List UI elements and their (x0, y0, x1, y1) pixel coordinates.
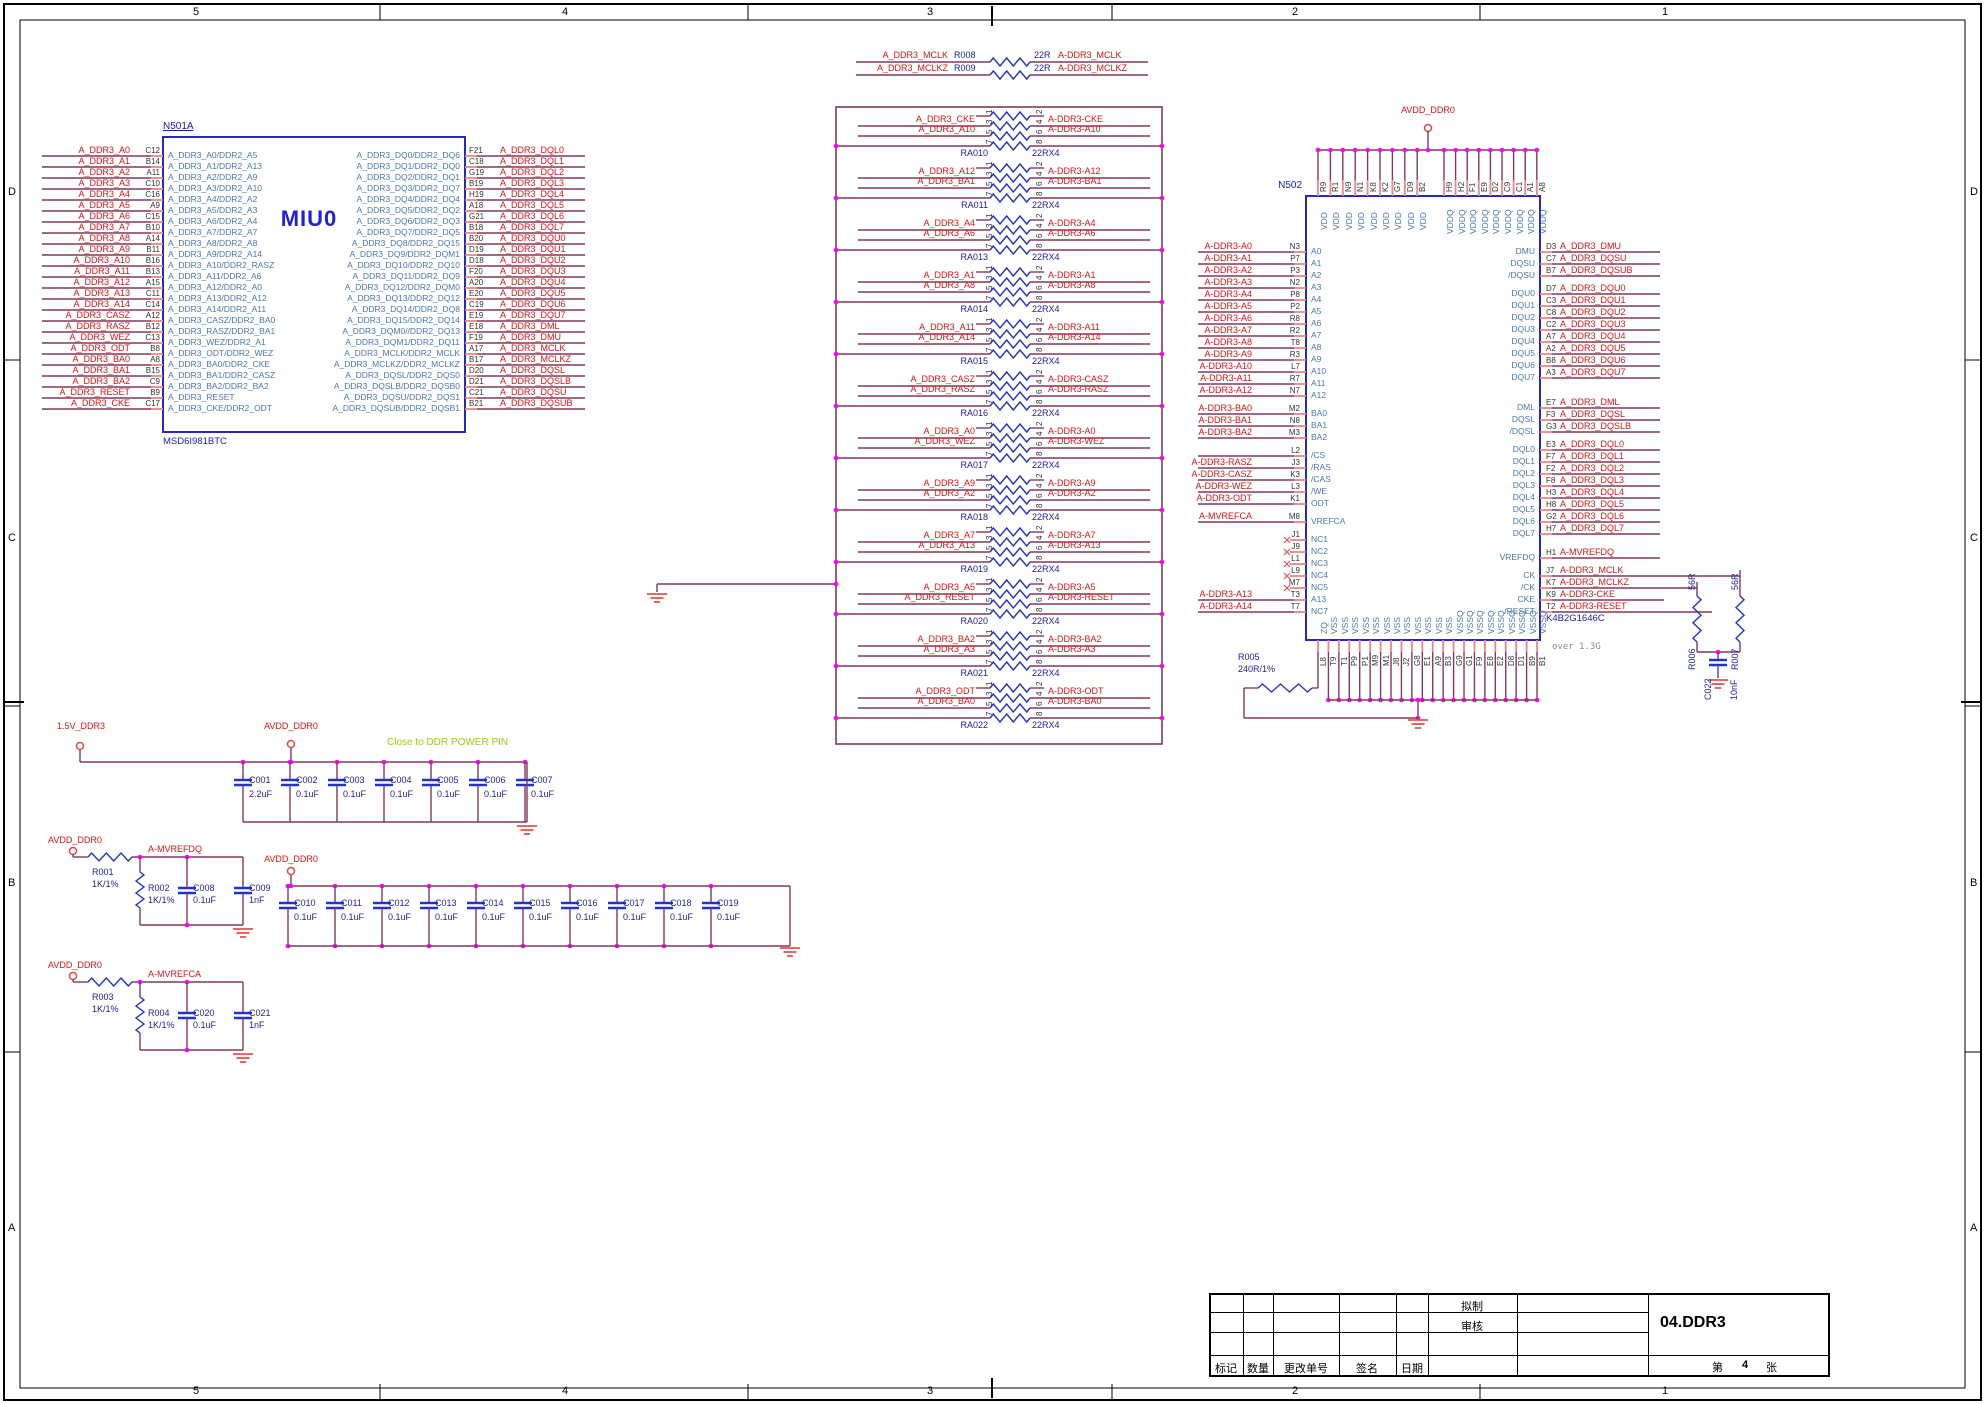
net-label[interactable]: A-DDR3_MCLK (1560, 566, 1624, 575)
pin-function: A4 (1311, 295, 1321, 304)
resistor-value[interactable]: 1K/1% (148, 896, 175, 905)
pin-number: C10 (145, 180, 160, 188)
net-label[interactable]: A_DDR3_BA2 (917, 635, 975, 644)
net-label[interactable]: A-DDR3-A10 (1048, 125, 1101, 134)
resistor-ref[interactable]: R004 (148, 1009, 170, 1018)
net-label[interactable]: A-DDR3-BA0 (1048, 697, 1102, 706)
net-label[interactable]: A_DDR3_CKE (71, 399, 130, 408)
resistor-value[interactable]: 22R (1034, 51, 1051, 60)
net-label[interactable]: A-MVREFDQ (1560, 548, 1614, 557)
network-ref[interactable]: RA011 (961, 201, 988, 210)
power-net-label[interactable]: AVDD_DDR0 (264, 855, 318, 864)
net-label[interactable]: A-DDR3-A14 (1048, 333, 1101, 342)
net-label[interactable]: A_DDR3_DQU0 (500, 234, 566, 243)
network-value[interactable]: 22RX4 (1032, 409, 1060, 418)
net-label[interactable]: A-DDR3-A2 (1048, 489, 1096, 498)
net-label[interactable]: A-DDR3-RASZ (1191, 458, 1252, 467)
net-label[interactable]: A_DDR3_DQSL (1560, 410, 1625, 419)
power-net-label[interactable]: AVDD_DDR0 (1401, 106, 1455, 115)
net-label[interactable]: A-DDR3-A13 (1199, 590, 1252, 599)
network-value[interactable]: 22RX4 (1032, 721, 1060, 730)
net-label[interactable]: A_DDR3_A11 (74, 267, 130, 276)
network-value[interactable]: 22RX4 (1032, 201, 1060, 210)
net-label[interactable]: A_DDR3_A13 (918, 541, 975, 550)
network-value[interactable]: 22RX4 (1032, 253, 1060, 262)
pin-function: A11 (1311, 379, 1326, 388)
pin-number: A20 (469, 279, 483, 287)
pin-number: H9 (1446, 182, 1454, 192)
network-pin-number: 5 (986, 442, 994, 446)
miu0-title[interactable]: MIU0 (281, 208, 338, 230)
net-label[interactable]: A-DDR3-A12 (1199, 386, 1252, 395)
net-label[interactable]: A-DDR3-A11 (1048, 323, 1100, 332)
net-label[interactable]: A-DDR3-A5 (1048, 583, 1096, 592)
capacitor-ref[interactable]: C014 (482, 899, 504, 908)
resistor-ref[interactable]: R008 (954, 51, 976, 60)
net-label[interactable]: A-DDR3-A1 (1048, 271, 1096, 280)
capacitor-value[interactable]: 0.1uF (531, 790, 554, 799)
pin-number: D21 (469, 378, 484, 386)
capacitor-ref[interactable]: C020 (193, 1009, 215, 1018)
capacitor-ref[interactable]: C004 (390, 776, 412, 785)
pin-function: VSSQ (1497, 610, 1506, 634)
pin-number: D18 (469, 257, 484, 265)
capacitor-ref[interactable]: C009 (249, 884, 271, 893)
pin-number: C12 (145, 147, 160, 155)
net-label[interactable]: A_DDR3_DQL6 (500, 212, 564, 221)
net-label[interactable]: A-DDR3-A6 (1204, 314, 1252, 323)
network-value[interactable]: 22RX4 (1032, 461, 1060, 470)
net-label[interactable]: A_DDR3_A4 (923, 219, 975, 228)
pin-number: A3 (1546, 369, 1556, 377)
capacitor-ref[interactable]: C006 (484, 776, 506, 785)
capacitor-ref[interactable]: C016 (576, 899, 598, 908)
pin-function: A_DDR3_DQ10/DDR2_DQ10 (347, 261, 460, 270)
net-label[interactable]: A_DDR3_BA1 (72, 366, 130, 375)
pin-function: A_DDR3_DQ3/DDR2_DQ7 (357, 184, 460, 193)
resistor-value[interactable]: 56R (1731, 573, 1740, 590)
net-label[interactable]: A_DDR3_A3 (78, 179, 130, 188)
pin-number: M3 (1289, 429, 1300, 437)
pin-number: D19 (469, 246, 484, 254)
net-label[interactable]: A-DDR3_MCLKZ (1058, 64, 1127, 73)
net-label[interactable]: A-DDR3-A0 (1204, 242, 1252, 251)
capacitor-value[interactable]: 0.1uF (484, 790, 507, 799)
capacitor-ref[interactable]: C021 (249, 1009, 271, 1018)
network-pin-number: 5 (986, 338, 994, 342)
net-label[interactable]: A_DDR3_DML (1560, 398, 1620, 407)
net-label[interactable]: A_DDR3_DQSUB (500, 399, 573, 408)
net-label[interactable]: A_DDR3_A3 (923, 645, 975, 654)
net-label[interactable]: A-DDR3-A2 (1204, 266, 1252, 275)
network-pin-number: 2 (1036, 110, 1044, 114)
net-label[interactable]: A_DDR3_DQL4 (1560, 488, 1624, 497)
net-label[interactable]: A-DDR3-A8 (1048, 281, 1096, 290)
net-label[interactable]: A_DDR3_DQL5 (1560, 500, 1624, 509)
net-label[interactable]: A_DDR3_DQU3 (1560, 320, 1626, 329)
capacitor-ref[interactable]: C019 (717, 899, 739, 908)
net-label[interactable]: A-DDR3-A1 (1204, 254, 1252, 263)
network-value[interactable]: 22RX4 (1032, 565, 1060, 574)
network-ref[interactable]: RA010 (960, 149, 988, 158)
net-label[interactable]: A_DDR3_A12 (73, 278, 130, 287)
network-value[interactable]: 22RX4 (1032, 617, 1060, 626)
net-label[interactable]: A_DDR3_DQU1 (500, 245, 566, 254)
pin-function: VDD (1345, 212, 1354, 230)
net-label[interactable]: A_DDR3_CASZ (65, 311, 130, 320)
net-label[interactable]: A-DDR3-A5 (1204, 302, 1252, 311)
capacitor-value[interactable]: 1nF (249, 896, 265, 905)
net-label[interactable]: A_DDR3_DQU6 (1560, 356, 1626, 365)
network-value[interactable]: 22RX4 (1032, 149, 1060, 158)
power-net-label[interactable]: AVDD_DDR0 (48, 961, 102, 970)
net-label[interactable]: A-DDR3-A13 (1048, 541, 1101, 550)
power-net-label[interactable]: AVDD_DDR0 (264, 722, 318, 731)
net-label[interactable]: A_DDR3_DQL1 (500, 157, 564, 166)
net-label[interactable]: A_DDR3_DQU6 (500, 300, 566, 309)
net-label[interactable]: A-DDR3-RESET (1048, 593, 1115, 602)
net-label[interactable]: A_DDR3_DQL3 (1560, 476, 1624, 485)
net-label[interactable]: A_DDR3_A8 (923, 281, 975, 290)
capacitor-value[interactable]: 2.2uF (249, 790, 272, 799)
net-label[interactable]: A-DDR3-A3 (1048, 645, 1096, 654)
net-label[interactable]: A_DDR3_WEZ (914, 437, 975, 446)
capacitor-value[interactable]: 0.1uF (717, 913, 740, 922)
network-ref[interactable]: RA018 (960, 513, 988, 522)
net-label[interactable]: A_DDR3_A1 (78, 157, 130, 166)
net-label[interactable]: A_DDR3_DQU1 (1560, 296, 1626, 305)
net-label[interactable]: A_DDR3_CASZ (910, 375, 975, 384)
net-label[interactable]: A_DDR3_DMU (500, 333, 561, 342)
network-ref[interactable]: RA017 (960, 461, 988, 470)
network-value[interactable]: 22RX4 (1032, 513, 1060, 522)
network-pin-number: 6 (1036, 182, 1044, 186)
net-label[interactable]: A_DDR3_DQSUB (1560, 266, 1633, 275)
network-value[interactable]: 22RX4 (1032, 305, 1060, 314)
net-label[interactable]: A_DDR3_A5 (78, 201, 130, 210)
net-label[interactable]: A-DDR3-A9 (1204, 350, 1252, 359)
pin-number: T9 (1330, 657, 1338, 666)
capacitor-value[interactable]: 0.1uF (435, 913, 458, 922)
net-label[interactable]: A_DDR3_A7 (78, 223, 130, 232)
net-label[interactable]: A_DDR3_A12 (918, 167, 975, 176)
net-label[interactable]: A_DDR3_A14 (73, 300, 130, 309)
net-label[interactable]: A-DDR3-CASZ (1191, 470, 1252, 479)
net-label[interactable]: A-DDR3_MCLKZ (1560, 578, 1629, 587)
net-label[interactable]: A_DDR3_A10 (73, 256, 130, 265)
capacitor-value[interactable]: 0.1uF (294, 913, 317, 922)
net-label[interactable]: A-DDR3-A14 (1199, 602, 1252, 611)
net-label[interactable]: A_DDR3_ODT (70, 344, 130, 353)
net-label[interactable]: A_DDR3_DQL0 (500, 146, 564, 155)
net-label[interactable]: A_DDR3_RASZ (910, 385, 975, 394)
net-label[interactable]: A_DDR3_DQU2 (500, 256, 566, 265)
capacitor-value[interactable]: 0.1uF (623, 913, 646, 922)
pin-number: A9 (150, 202, 160, 210)
net-label[interactable]: A_DDR3_A10 (918, 125, 975, 134)
network-pin-number: 7 (986, 660, 994, 664)
network-ref[interactable]: RA015 (960, 357, 988, 366)
network-pin-number: 3 (986, 328, 994, 332)
net-label[interactable]: A-DDR3-BA2 (1198, 428, 1252, 437)
resistor-ref[interactable]: R006 (1688, 648, 1697, 670)
net-label[interactable]: A_DDR3_BA1 (917, 177, 975, 186)
net-label[interactable]: A_DDR3_A7 (923, 531, 975, 540)
net-label[interactable]: A_DDR3_DQL1 (1560, 452, 1624, 461)
net-label[interactable]: A_DDR3_DQU7 (1560, 368, 1626, 377)
net-label[interactable]: A-DDR3-BA1 (1048, 177, 1102, 186)
net-label[interactable]: A_DDR3_DQL0 (1560, 440, 1624, 449)
net-label[interactable]: A-MVREFDQ (148, 845, 202, 854)
network-pin-number: 3 (986, 588, 994, 592)
pin-number: A7 (1546, 333, 1556, 341)
net-label[interactable]: A_DDR3_DQU4 (1560, 332, 1626, 341)
capacitor-ref[interactable]: C013 (435, 899, 457, 908)
capacitor-ref[interactable]: C001 (249, 776, 271, 785)
network-value[interactable]: 22RX4 (1032, 669, 1060, 678)
ddr-designator[interactable]: N502 (1278, 181, 1302, 191)
capacitor-ref[interactable]: C007 (531, 776, 553, 785)
net-label[interactable]: A_DDR3_A8 (78, 234, 130, 243)
net-label[interactable]: A_DDR3_A0 (78, 146, 130, 155)
net-label[interactable]: A_DDR3_A4 (78, 190, 130, 199)
miu0-part-number[interactable]: MSD6I981BTC (163, 437, 227, 447)
pin-number: B20 (469, 235, 483, 243)
net-label[interactable]: A_DDR3_DQL4 (500, 190, 564, 199)
capacitor-value[interactable]: 0.1uF (343, 790, 366, 799)
net-label[interactable]: A_DDR3_A9 (923, 479, 975, 488)
pin-number: F8 (1546, 477, 1555, 485)
resistor-value[interactable]: 240R/1% (1238, 665, 1275, 674)
pin-number: C8 (1546, 309, 1556, 317)
capacitor-value[interactable]: 0.1uF (390, 790, 413, 799)
net-label[interactable]: A-DDR3-RASZ (1048, 385, 1109, 394)
net-label[interactable]: A_DDR3_A2 (78, 168, 130, 177)
net-label[interactable]: A-DDR3-ODT (1197, 494, 1253, 503)
capacitor-ref[interactable]: C005 (437, 776, 459, 785)
net-label[interactable]: A-DDR3-BA2 (1048, 635, 1102, 644)
net-label[interactable]: A-DDR3-ODT (1048, 687, 1104, 696)
pin-number: B15 (146, 367, 160, 375)
capacitor-value[interactable]: 0.1uF (341, 913, 364, 922)
net-label[interactable]: A_DDR3_A11 (919, 323, 975, 332)
capacitor-value[interactable]: 0.1uF (388, 913, 411, 922)
net-label[interactable]: A-DDR3-WEZ (1048, 437, 1105, 446)
zone-letter: D (8, 187, 16, 198)
resistor-value[interactable]: 1K/1% (92, 880, 119, 889)
capacitor-ref[interactable]: C002 (296, 776, 318, 785)
net-label[interactable]: A_DDR3_DQU2 (1560, 308, 1626, 317)
pin-function: DML (1517, 403, 1535, 412)
net-label[interactable]: A_DDR3_A13 (73, 289, 130, 298)
resistor-value[interactable]: 1K/1% (148, 1021, 175, 1030)
network-ref[interactable]: RA021 (960, 669, 988, 678)
net-label[interactable]: A-DDR3-RESET (1560, 602, 1627, 611)
capacitor-value[interactable]: 0.1uF (576, 913, 599, 922)
pin-number: A15 (146, 279, 160, 287)
resistor-value[interactable]: 22R (1034, 64, 1051, 73)
net-label[interactable]: A-MVREFCA (1199, 512, 1252, 521)
capacitor-ref[interactable]: C017 (623, 899, 645, 908)
network-ref[interactable]: RA014 (960, 305, 988, 314)
net-label[interactable]: A-DDR3-A4 (1048, 219, 1096, 228)
net-label[interactable]: A_DDR3_A1 (923, 271, 975, 280)
net-label[interactable]: A_DDR3_RESET (59, 388, 130, 397)
power-net-label[interactable]: 1.5V_DDR3 (57, 722, 105, 731)
net-label[interactable]: A-DDR3-A6 (1048, 229, 1096, 238)
network-pin-number: 5 (986, 130, 994, 134)
net-label[interactable]: A-DDR3-BA0 (1198, 404, 1252, 413)
pin-number: B13 (146, 268, 160, 276)
zone-number: 1 (1662, 7, 1668, 18)
net-label[interactable]: A_DDR3_DQSLB (1560, 422, 1631, 431)
net-label[interactable]: A_DDR3_DQU5 (500, 289, 566, 298)
pin-function: VSSQ (1518, 610, 1527, 634)
capacitor-ref[interactable]: C011 (341, 899, 362, 908)
net-label[interactable]: A-DDR3-CKE (1048, 115, 1103, 124)
resistor-ref[interactable]: R002 (148, 884, 170, 893)
net-label[interactable]: A_DDR3_MCLKZ (877, 64, 948, 73)
net-label[interactable]: A_DDR3_DMU (1560, 242, 1621, 251)
net-label[interactable]: A_DDR3_MCLK (882, 51, 948, 60)
capacitor-value[interactable]: 0.1uF (529, 913, 552, 922)
pin-function: A_DDR3_A14/DDR2_A11 (168, 305, 266, 314)
net-label[interactable]: A_DDR3_A5 (923, 583, 975, 592)
pin-function: A_DDR3_A13/DDR2_A12 (168, 294, 267, 303)
capacitor-ref[interactable]: C008 (193, 884, 215, 893)
net-label[interactable]: A_DDR3_DQSL (500, 366, 565, 375)
network-pin-number: 5 (986, 598, 994, 602)
miu0-designator[interactable]: N501A (163, 122, 194, 132)
capacitor-value[interactable]: 1nF (249, 1021, 265, 1030)
net-label[interactable]: A_DDR3_MCLKZ (500, 355, 571, 364)
network-pin-number: 6 (1036, 390, 1044, 394)
net-label[interactable]: A_DDR3_DQL7 (500, 223, 564, 232)
network-pin-number: 8 (1036, 192, 1044, 196)
net-label[interactable]: A_DDR3_DQSLB (500, 377, 571, 386)
net-label[interactable]: A-DDR3-WEZ (1196, 482, 1253, 491)
net-label[interactable]: A_DDR3_DQU0 (1560, 284, 1626, 293)
capacitor-value[interactable]: 0.1uF (670, 913, 693, 922)
pin-function: VSSQ (1476, 610, 1485, 634)
network-ref[interactable]: RA013 (960, 253, 988, 262)
capacitor-value[interactable]: 10nF (1730, 679, 1739, 700)
capacitor-ref[interactable]: C022 (1704, 678, 1713, 700)
pin-function: A_DDR3_DQSUB/DDR2_DQSB1 (332, 404, 460, 413)
network-ref[interactable]: RA019 (960, 565, 988, 574)
net-label[interactable]: A-DDR3_MCLK (1058, 51, 1122, 60)
ddr-part-number[interactable]: K4B2G1646C (1546, 614, 1605, 624)
net-label[interactable]: A-DDR3-A9 (1048, 479, 1096, 488)
resistor-value[interactable]: 56R (1688, 573, 1697, 590)
net-label[interactable]: A-DDR3-A0 (1048, 427, 1096, 436)
net-label[interactable]: A_DDR3_DQL7 (1560, 524, 1624, 533)
net-label[interactable]: A-DDR3-A12 (1048, 167, 1101, 176)
network-ref[interactable]: RA016 (960, 409, 988, 418)
net-label[interactable]: A_DDR3_WEZ (69, 333, 130, 342)
net-label[interactable]: A_DDR3_BA2 (72, 377, 130, 386)
net-label[interactable]: A_DDR3_A14 (918, 333, 975, 342)
capacitor-ref[interactable]: C012 (388, 899, 410, 908)
net-label[interactable]: A_DDR3_A6 (78, 212, 130, 221)
net-label[interactable]: A_DDR3_DQL2 (500, 168, 564, 177)
capacitor-value[interactable]: 0.1uF (193, 896, 216, 905)
net-label[interactable]: A-DDR3-BA1 (1198, 416, 1252, 425)
net-label[interactable]: A_DDR3_DQL6 (1560, 512, 1624, 521)
capacitor-ref[interactable]: C015 (529, 899, 551, 908)
net-label[interactable]: A_DDR3_BA0 (72, 355, 130, 364)
net-label[interactable]: A_DDR3_DQU7 (500, 311, 566, 320)
net-label[interactable]: A-DDR3-CASZ (1048, 375, 1109, 384)
resistor-ref[interactable]: R003 (92, 993, 114, 1002)
net-label[interactable]: A_DDR3_BA0 (917, 697, 975, 706)
net-label[interactable]: A-DDR3-A7 (1204, 326, 1252, 335)
pin-function: VSS (1435, 617, 1444, 634)
net-label[interactable]: A_DDR3_DML (500, 322, 560, 331)
net-label[interactable]: A_DDR3_DQU3 (500, 267, 566, 276)
resistor-ref[interactable]: R009 (954, 64, 976, 73)
capacitor-value[interactable]: 0.1uF (193, 1021, 216, 1030)
resistor-value[interactable]: 1K/1% (92, 1005, 119, 1014)
net-label[interactable]: A_DDR3_DQSU (500, 388, 567, 397)
pin-number: C7 (1546, 255, 1556, 263)
net-label[interactable]: A_DDR3_CKE (916, 115, 975, 124)
pin-number: A12 (146, 312, 160, 320)
net-label[interactable]: A_DDR3_A6 (923, 229, 975, 238)
net-label[interactable]: A-MVREFCA (148, 970, 201, 979)
pin-function: A_DDR3_RESET (168, 393, 235, 402)
pin-function: A_DDR3_BA0/DDR2_CKE (168, 360, 270, 369)
network-ref[interactable]: RA022 (960, 721, 988, 730)
resistor-ref[interactable]: R005 (1238, 653, 1260, 662)
resistor-ref[interactable]: R007 (1731, 648, 1740, 670)
net-label[interactable]: A_DDR3_DQU5 (1560, 344, 1626, 353)
net-label[interactable]: A-DDR3-A7 (1048, 531, 1096, 540)
net-label[interactable]: A-DDR3-A8 (1204, 338, 1252, 347)
capacitor-ref[interactable]: C003 (343, 776, 365, 785)
net-label[interactable]: A_DDR3_MCLK (500, 344, 566, 353)
capacitor-ref[interactable]: C018 (670, 899, 692, 908)
network-ref[interactable]: RA020 (960, 617, 988, 626)
capacitor-value[interactable]: 0.1uF (296, 790, 319, 799)
resistor-ref[interactable]: R001 (92, 868, 114, 877)
net-label[interactable]: A_DDR3_DQL5 (500, 201, 564, 210)
net-label[interactable]: A_DDR3_RESET (904, 593, 975, 602)
power-net-label[interactable]: AVDD_DDR0 (48, 836, 102, 845)
network-pin-number: 1 (986, 474, 994, 478)
net-label[interactable]: A_DDR3_ODT (915, 687, 975, 696)
network-value[interactable]: 22RX4 (1032, 357, 1060, 366)
net-label[interactable]: A-DDR3-A3 (1204, 278, 1252, 287)
net-label[interactable]: A-DDR3-CKE (1560, 590, 1615, 599)
net-label[interactable]: A_DDR3_A2 (923, 489, 975, 498)
net-label[interactable]: A_DDR3_DQL3 (500, 179, 564, 188)
capacitor-value[interactable]: 0.1uF (482, 913, 505, 922)
net-label[interactable]: A_DDR3_RASZ (65, 322, 130, 331)
capacitor-value[interactable]: 0.1uF (437, 790, 460, 799)
net-label[interactable]: A_DDR3_DQL2 (1560, 464, 1624, 473)
net-label[interactable]: A-DDR3-A4 (1204, 290, 1252, 299)
capacitor-ref[interactable]: C010 (294, 899, 316, 908)
net-label[interactable]: A-DDR3-A11 (1200, 374, 1252, 383)
net-label[interactable]: A_DDR3_DQU4 (500, 278, 566, 287)
net-label[interactable]: A_DDR3_DQSU (1560, 254, 1627, 263)
net-label[interactable]: A-DDR3-A10 (1199, 362, 1252, 371)
pin-function: DQL5 (1513, 505, 1535, 514)
net-label[interactable]: A_DDR3_A0 (923, 427, 975, 436)
net-label[interactable]: A_DDR3_A9 (78, 245, 130, 254)
pin-number: F3 (1546, 411, 1555, 419)
